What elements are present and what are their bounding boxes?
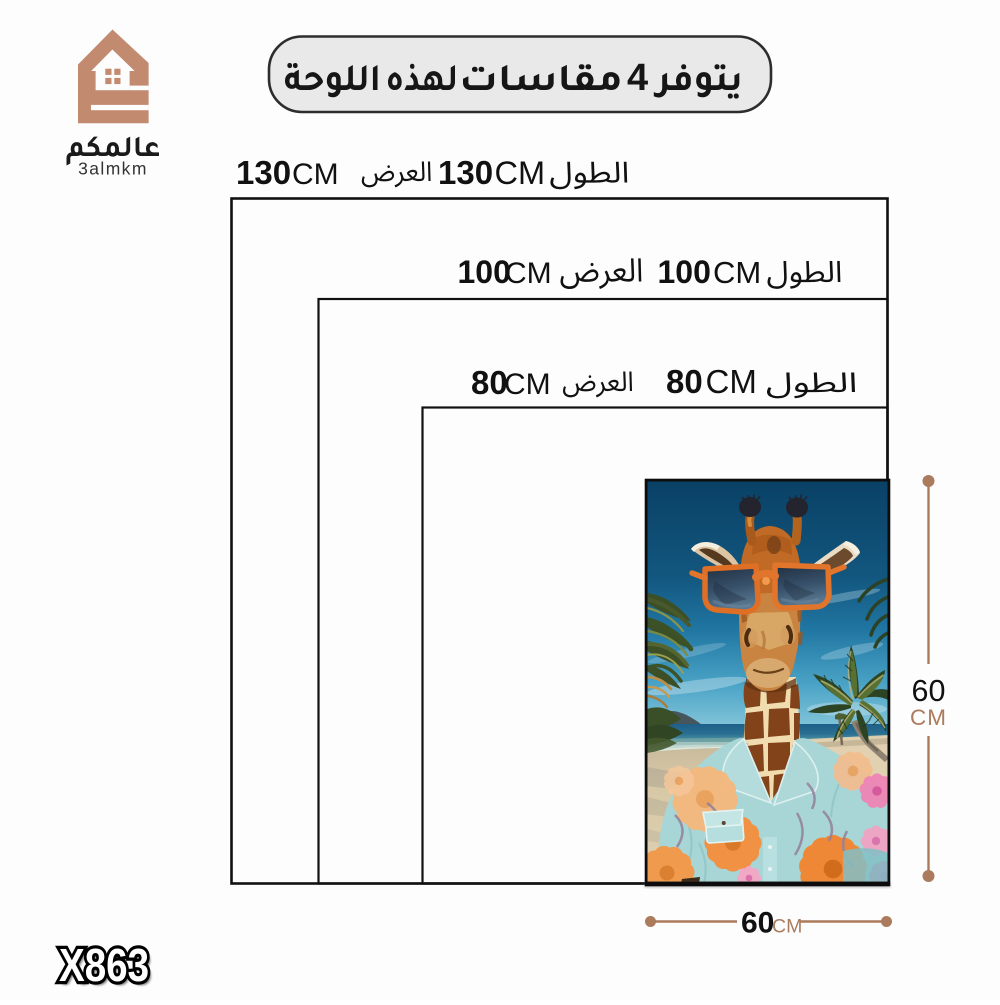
svg-text:130: 130 (236, 154, 291, 191)
svg-text:CM: CM (292, 158, 339, 191)
svg-text:X863: X863 (59, 939, 149, 991)
svg-text:4: 4 (627, 57, 648, 99)
svg-text:CM: CM (772, 916, 802, 938)
svg-text:3almkm: 3almkm (78, 159, 148, 179)
svg-text:CM: CM (910, 705, 947, 730)
svg-text:130: 130 (438, 154, 493, 191)
svg-text:60: 60 (912, 674, 946, 708)
svg-text:80: 80 (471, 364, 508, 401)
svg-text:CM: CM (713, 255, 761, 290)
svg-text:CM: CM (495, 155, 546, 191)
svg-text:CM: CM (505, 257, 552, 290)
svg-text:80: 80 (666, 363, 703, 400)
svg-text:100: 100 (658, 254, 711, 290)
svg-text:60: 60 (741, 907, 774, 940)
svg-text:CM: CM (706, 363, 757, 400)
svg-text:100: 100 (458, 254, 511, 290)
svg-text:CM: CM (504, 368, 551, 401)
